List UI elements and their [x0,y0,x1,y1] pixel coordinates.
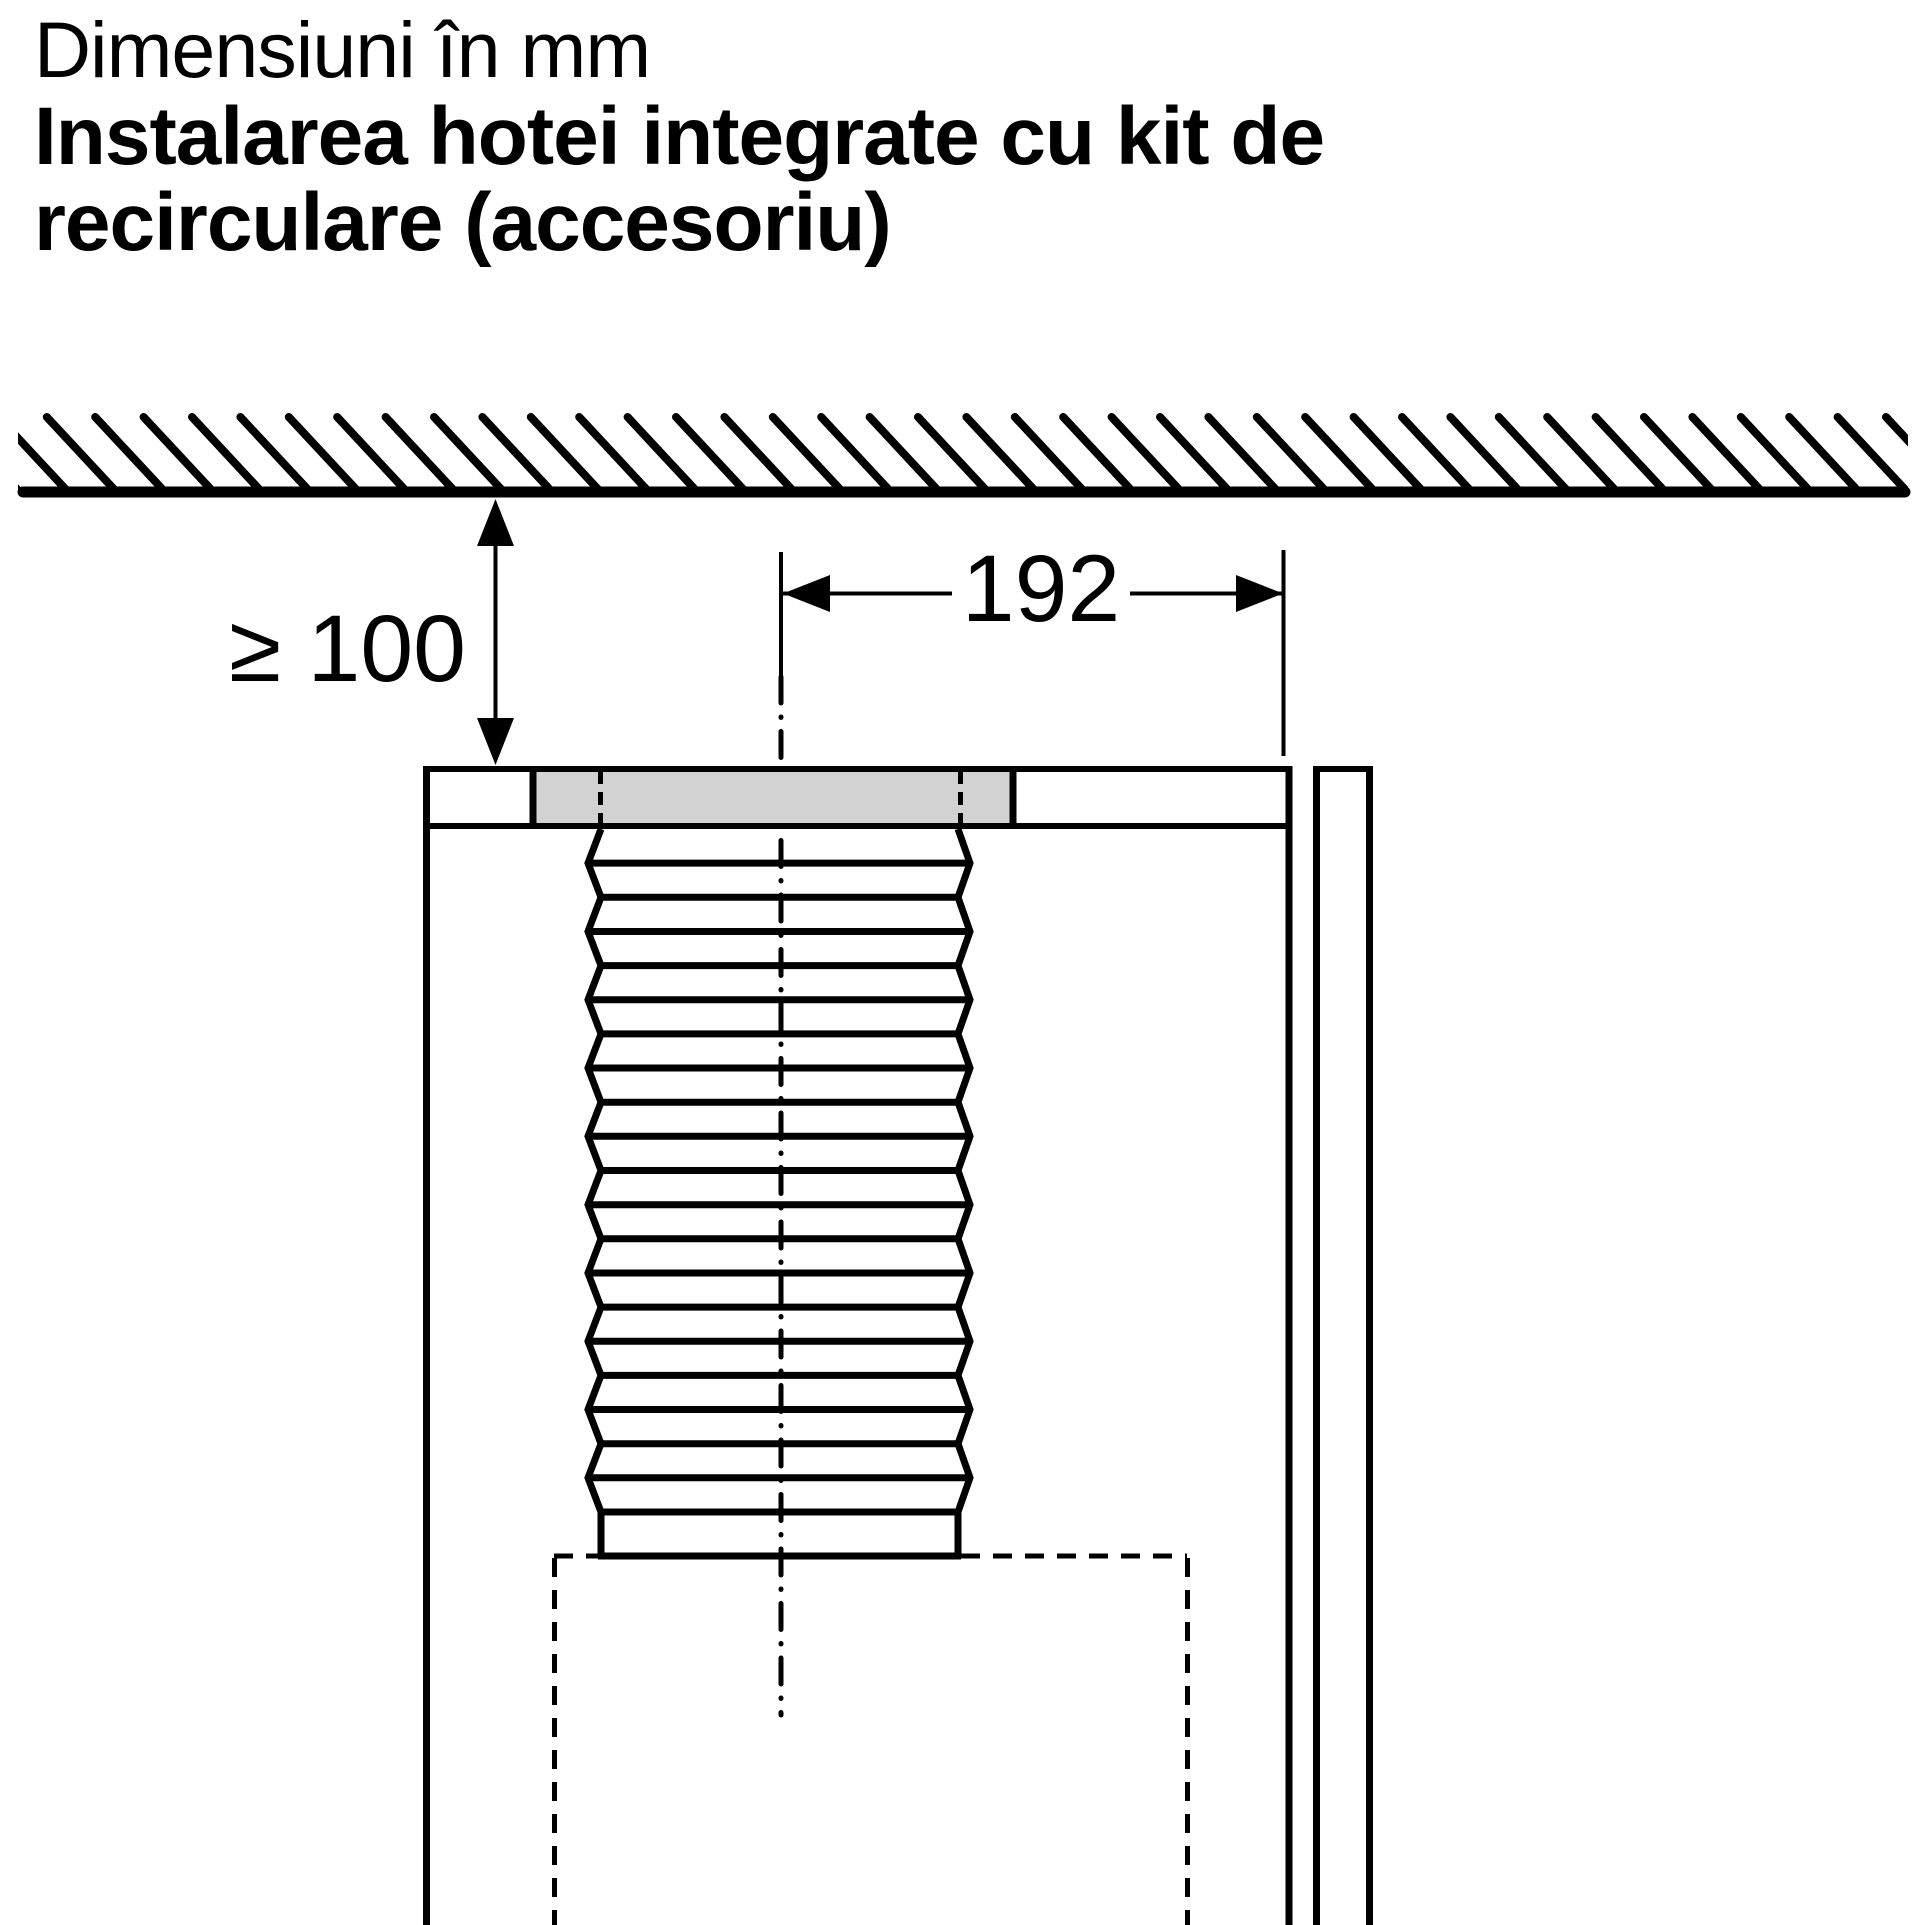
width-dimension: 192 [783,536,1284,756]
clearance-dimension: ≥ 100 [229,499,514,765]
installation-diagram: ≥ 100 192 [0,0,1925,1925]
cabinet-top-panel [423,766,1292,829]
flexible-duct [588,829,970,1512]
width-dimension-label: 192 [962,536,1121,642]
clearance-dimension-label: ≥ 100 [229,596,466,702]
diagram-page: Dimensiuni în mm Instalarea hotei integr… [0,0,1925,1925]
side-panel [1313,766,1373,1925]
ceiling-hatch [0,417,1925,489]
clearance-arrow-up-icon [477,499,514,546]
width-arrow-left-icon [783,575,830,612]
generated-line [0,417,17,489]
clearance-arrow-down-icon [477,718,514,765]
recirculation-kit-band [533,769,1013,826]
hood-dashed-outline [554,1556,1188,1925]
width-arrow-right-icon [1236,575,1283,612]
